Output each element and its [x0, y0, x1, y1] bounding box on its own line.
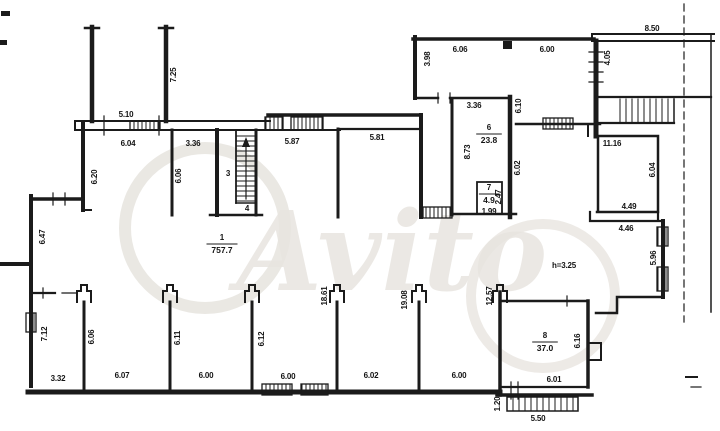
dimension-label: 12.57	[485, 286, 494, 306]
dimension-label: h=3.25	[552, 261, 577, 270]
dimension-label: 4.49	[622, 202, 638, 211]
dimension-label: 18.61	[320, 286, 329, 306]
room-area: 4.9	[483, 195, 495, 205]
dimension-label: 19.08	[400, 290, 409, 310]
dimension-label: 6.12	[257, 331, 266, 347]
dimension-label: 5.96	[649, 250, 658, 266]
dimension-label: 6.20	[90, 169, 99, 185]
dimension-label: 1.99	[482, 207, 498, 216]
upper-wall-pier	[503, 41, 512, 49]
dimension-label: 6.47	[38, 229, 47, 245]
room-number: 7	[487, 183, 492, 192]
dimension-label: 5.50	[531, 414, 547, 423]
dimension-label: 6.11	[173, 330, 182, 345]
dimension-label: 2.47	[494, 189, 503, 205]
watermark: Avito	[125, 148, 615, 368]
dimension-label: 6.00	[199, 371, 215, 380]
dimension-label: 6.06	[87, 329, 96, 345]
entry-steps	[507, 397, 578, 411]
dimension-label: 6.07	[115, 371, 131, 380]
dimension-label: 6.04	[648, 162, 657, 178]
room-area: 757.7	[211, 245, 233, 255]
room-area: 23.8	[481, 135, 498, 145]
dimension-label: 7.12	[40, 326, 49, 342]
dimension-label: 3.36	[186, 139, 202, 148]
dimension-label: 3.36	[467, 101, 483, 110]
dimension-label: 3.98	[423, 51, 432, 67]
dimension-label: 8.50	[645, 24, 661, 33]
dimension-label: 6.00	[540, 45, 556, 54]
dimension-label: 6.02	[364, 371, 380, 380]
dimension-label: 5.81	[370, 133, 386, 142]
dimension-label: 6.16	[573, 333, 582, 349]
dimension-label: 3.32	[51, 374, 67, 383]
stairs-up-arrow	[242, 137, 250, 147]
scan-marks	[0, 11, 10, 45]
dimension-label: 6.06	[174, 168, 183, 184]
floor-plan-svg: Avito	[0, 0, 720, 431]
dimension-label: 3	[226, 169, 231, 178]
scan-marks-br	[686, 377, 701, 387]
dimension-label: 7.25	[169, 67, 178, 83]
dimension-label: 6.00	[452, 371, 468, 380]
room-number: 8	[543, 331, 548, 340]
dimension-label: 6.06	[453, 45, 469, 54]
dimension-label: 8.73	[463, 144, 472, 160]
dimension-label: 1.20	[493, 396, 502, 412]
west-walls	[0, 124, 91, 386]
dimension-label: 6.10	[514, 98, 523, 114]
dimension-label: 4.05	[603, 50, 612, 66]
dimension-label: 5.10	[119, 110, 135, 119]
dimension-label: 11.16	[603, 139, 622, 148]
room-number: 6	[487, 123, 492, 132]
dimension-label: 6.01	[547, 375, 563, 384]
floor-plan-image: Avito	[0, 0, 720, 431]
dimension-label: 4.46	[619, 224, 635, 233]
room-area: 37.0	[537, 343, 554, 353]
dimension-label: 6.04	[121, 139, 137, 148]
dimension-label: 6.00	[281, 372, 297, 381]
dimension-label: 5.87	[285, 137, 301, 146]
room-number: 1	[220, 233, 225, 242]
dimension-label: 6.02	[513, 160, 522, 176]
